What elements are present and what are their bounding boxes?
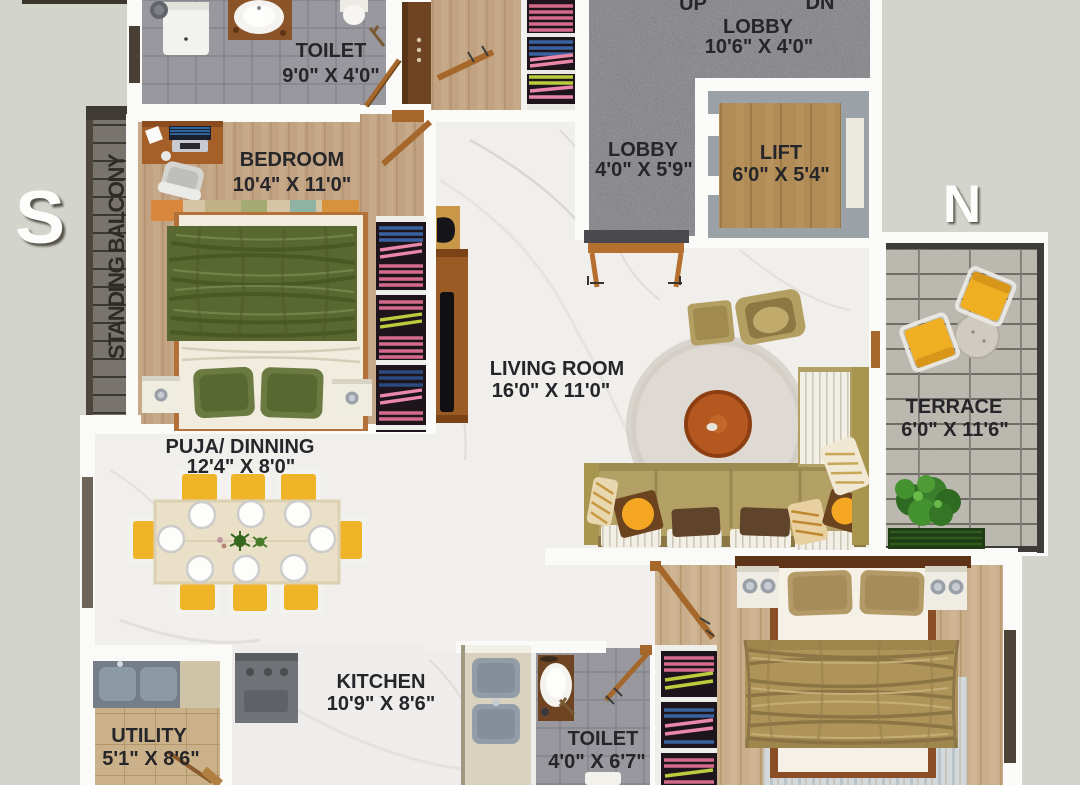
svg-text:4'0" X 5'9": 4'0" X 5'9" [595,159,692,181]
svg-text:6'0" X 11'6": 6'0" X 11'6" [901,419,1008,441]
svg-text:UTILITY: UTILITY [111,725,187,747]
svg-text:10'9" X 8'6": 10'9" X 8'6" [327,693,436,715]
svg-text:BEDROOM: BEDROOM [240,149,344,171]
svg-text:LIVING ROOM: LIVING ROOM [490,358,624,380]
svg-text:16'0" X 11'0": 16'0" X 11'0" [492,380,611,402]
svg-text:PUJA/ DINNING: PUJA/ DINNING [166,436,315,458]
svg-text:4'0" X 6'7": 4'0" X 6'7" [548,751,645,773]
svg-text:UP: UP [679,0,707,15]
svg-text:LIFT: LIFT [760,142,802,164]
svg-text:5'1" X 8'6": 5'1" X 8'6" [102,748,199,770]
svg-text:KITCHEN: KITCHEN [337,671,426,693]
svg-text:DN: DN [806,0,835,14]
svg-text:LOBBY: LOBBY [608,139,679,161]
svg-text:TOILET: TOILET [296,40,367,62]
svg-text:TERRACE: TERRACE [906,396,1003,418]
svg-text:12'4" X 8'0": 12'4" X 8'0" [187,456,296,478]
svg-text:TOILET: TOILET [568,728,639,750]
svg-text:10'6" X 4'0": 10'6" X 4'0" [705,36,814,58]
svg-text:LOBBY: LOBBY [723,16,794,38]
svg-text:STANDING BALCONY: STANDING BALCONY [104,153,129,359]
svg-text:S: S [15,175,65,259]
svg-text:10'4" X 11'0": 10'4" X 11'0" [233,174,352,196]
svg-text:9'0" X 4'0": 9'0" X 4'0" [282,65,379,87]
svg-text:6'0" X 5'4": 6'0" X 5'4" [732,164,829,186]
svg-text:N: N [943,175,981,234]
